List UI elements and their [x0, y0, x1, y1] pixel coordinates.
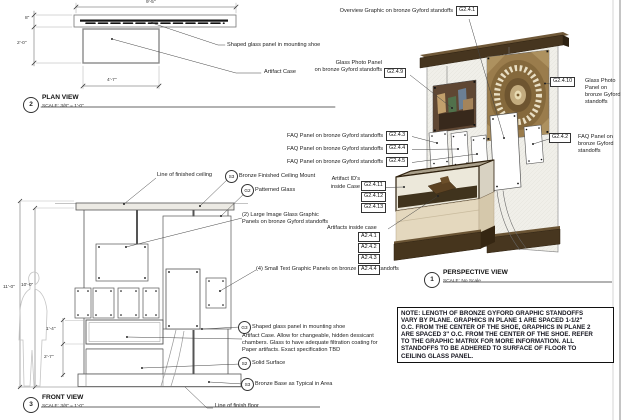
persp-view-title: PERSPECTIVE VIEW [443, 269, 508, 276]
front-label-ceiling-line: Line of finished ceiling [157, 172, 212, 179]
front-tag-ceiling-mount: S3 [225, 170, 238, 183]
persp-label-photo-right-1: Glass Photo [585, 78, 615, 85]
front-ceiling-mount [76, 203, 234, 210]
front-label-solid-surface: Solid Surface [252, 360, 285, 367]
overview-panel [490, 113, 521, 191]
persp-tag-artifact-1: A2.4.1 [358, 232, 380, 242]
persp-tag-artifact-3: A2.4.3 [358, 254, 380, 264]
persp-tag-faq-right: G2.4.2 [549, 133, 571, 143]
drawing-sheet: 9'-5" 8" 2'-0" 4'-7" Shaped glass panel … [0, 0, 624, 420]
persp-label-photo-left-1: Glass Photo Panel [300, 60, 382, 67]
note-line-1: NOTE: LENGTH OF BRONZE GYFORD GRAPHIC ST… [401, 310, 610, 317]
persp-label-photo-right-2: Panel on [585, 85, 607, 92]
note-line-2: VARY BY PLANE. GRAPHICS IN PLANE 1 ARE S… [401, 317, 610, 324]
persp-tag-faq-1: G2.4.3 [386, 131, 408, 141]
persp-label-faq-1: FAQ Panel on bronze Gyford standoffs [278, 133, 383, 140]
front-label-large-panels-2: Panels on bronze Gyford standoffs [242, 219, 328, 226]
front-tag-patterned-glass: G2 [241, 184, 254, 197]
persp-tag-photo-left: G2.4.9 [384, 68, 406, 78]
plan-dim-shoe-depth: 8" [25, 16, 29, 22]
persp-tag-artifact-id-1: G2.4.11 [361, 181, 386, 191]
perspective-case [394, 160, 495, 261]
front-dim-case-base: 2'-7" [44, 355, 54, 361]
front-dim-case-glass: 1'-4" [46, 327, 56, 333]
persp-label-artifacts: Artifacts inside case [327, 225, 377, 232]
plan-view-number: 2 [23, 97, 39, 113]
front-label-patterned-glass: Patterned Glass [255, 187, 295, 194]
persp-label-faq-right-2: bronze Gyford [578, 141, 613, 148]
persp-label-artifact-ids-1: Artifact ID's [315, 176, 360, 183]
persp-tag-artifact-id-2: G2.4.12 [361, 192, 386, 202]
persp-label-photo-right-4: standoffs [585, 99, 608, 106]
front-dim-glass-height: 10'-0" [21, 283, 33, 289]
persp-tag-faq-2: G2.4.4 [386, 144, 408, 154]
persp-view-number: 1 [424, 272, 440, 288]
persp-tag-faq-3: G2.4.5 [386, 157, 408, 167]
plan-graphic-bar [80, 20, 228, 22]
front-dim-overall-height: 11'-0" [3, 285, 15, 291]
note-line-7: CEILING GLASS PANEL. [401, 353, 610, 360]
human-figure [19, 272, 47, 386]
persp-label-photo-left-2: on bronze Gyford standoffs [300, 67, 382, 74]
persp-view-scale: SCALE: No Scale [443, 279, 481, 284]
persp-tag-artifact-4: A2.4.4 [358, 265, 380, 275]
front-label-shaped-glass: Shaped glass panel in mounting shoe [252, 324, 345, 331]
front-tall-panel [166, 269, 200, 329]
persp-tag-artifact-id-3: G2.4.13 [361, 203, 386, 213]
front-photo-panel [96, 244, 148, 281]
photo-panel [433, 80, 476, 133]
persp-label-faq-right-1: FAQ Panel on [578, 134, 613, 141]
front-view-number: 3 [23, 397, 39, 413]
persp-tag-photo-right: G2.4.10 [550, 77, 575, 87]
persp-label-overview: Overview Graphic on bronze Gyford stando… [335, 8, 453, 15]
plan-label-shoe: Shaped glass panel in mounting shoe [227, 42, 320, 49]
front-label-case-note-3: Paper artifacts. Exact specification TBD [242, 347, 340, 354]
general-note-box: NOTE: LENGTH OF BRONZE GYFORD GRAPHIC ST… [397, 307, 614, 363]
front-label-ceiling-mount: Bronze Finished Ceiling Mount [239, 173, 315, 180]
note-line-4: ARE SPACED 3" O.C. FROM THE CENTER OF TH… [401, 331, 610, 338]
persp-label-faq-3: FAQ Panel on bronze Gyford standoffs [278, 159, 383, 166]
front-tag-solid-surface: S2 [238, 357, 251, 370]
note-line-5: TO THE GRAPHIC MATRIX FOR MORE INFORMATI… [401, 338, 610, 345]
front-tag-bronze-base: S3 [241, 378, 254, 391]
plan-dim-width: 9'-5" [146, 0, 156, 6]
persp-tag-artifact-2: A2.4.2 [358, 243, 380, 253]
plan-view-scale: SCALE: 3/8" = 1'-0" [42, 104, 84, 109]
front-view-scale: SCALE: 3/8" = 1'-0" [42, 404, 84, 409]
sheet-border [613, 0, 620, 420]
front-artifact-case [78, 320, 241, 387]
persp-label-faq-right-3: standoffs [578, 148, 601, 155]
front-view-title: FRONT VIEW [42, 394, 83, 401]
persp-label-artifact-ids-2: inside Case [315, 184, 360, 191]
front-label-case-note-1: Artifact Case. Allow for changeable, hid… [242, 333, 374, 340]
plan-view-title: PLAN VIEW [42, 94, 79, 101]
plan-view-linework [32, 3, 335, 107]
note-line-6: STANDOFFS TO BE ADHERED TO SURFACE OF FL… [401, 345, 610, 352]
persp-label-faq-2: FAQ Panel on bronze Gyford standoffs [278, 146, 383, 153]
note-line-3: O.C. FROM THE CENTER OF THE SHOE, GRAPHI… [401, 324, 610, 331]
plan-dim-case-width: 4'-7" [107, 78, 117, 84]
front-label-bronze-base: Bronze Base as Typical in Area [255, 381, 332, 388]
plan-dim-case-depth: 2'-0" [17, 41, 27, 47]
front-label-case-note-2: chambers. Glass to have adequate filtrat… [242, 340, 378, 347]
plan-artifact-case [83, 29, 159, 63]
persp-label-photo-right-3: bronze Gyford [585, 92, 620, 99]
front-label-floor-line: Line of finish floor [215, 403, 259, 410]
plan-label-case: Artifact Case [264, 69, 296, 76]
persp-tag-overview: G2.4.1 [456, 6, 478, 16]
front-label-large-panels-1: (2) Large Image Glass Graphic [242, 212, 319, 219]
